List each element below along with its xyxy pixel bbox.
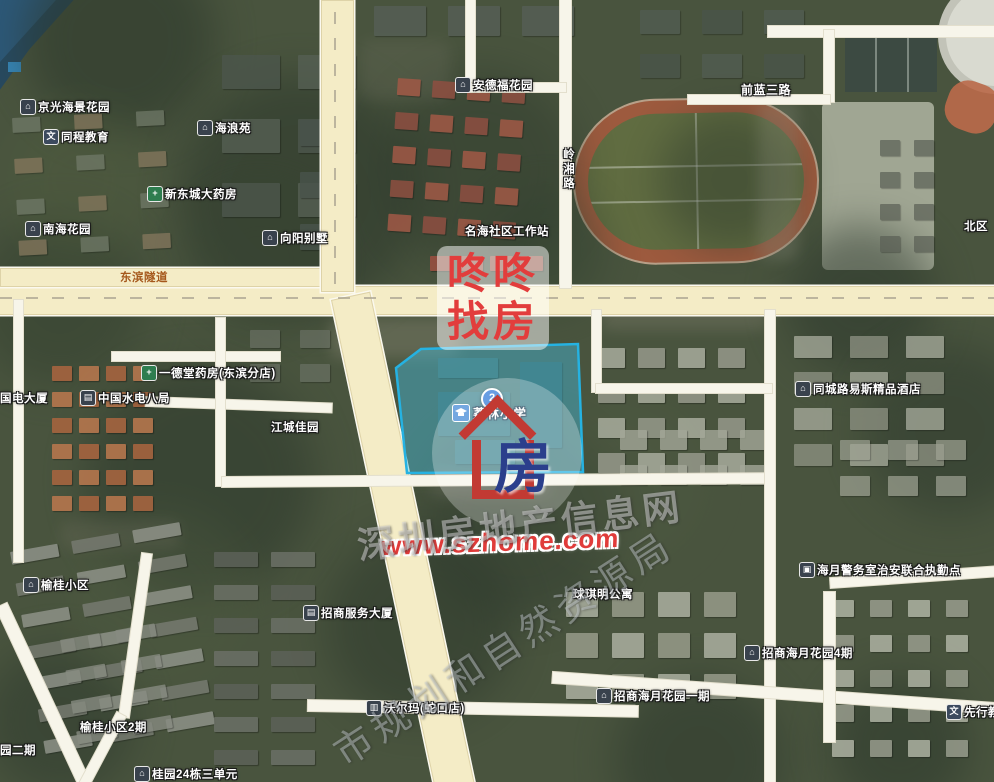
label-text: 先行教育 <box>964 704 994 720</box>
office-icon: ▤ <box>80 390 96 406</box>
label-text: 东滨隧道 <box>120 269 168 285</box>
label-text: 同城路易斯精品酒店 <box>813 381 921 397</box>
school-name: 荔林小学 <box>473 403 527 422</box>
poi-label[interactable]: ⌂海浪苑 <box>197 120 251 136</box>
med-icon: + <box>147 186 163 202</box>
house-icon: ⌂ <box>134 766 150 782</box>
office-icon: ▤ <box>303 605 319 621</box>
poi-label[interactable]: 榆桂小区2期 <box>80 719 147 735</box>
road-label: 岭湘路 <box>560 148 576 192</box>
med-icon: + <box>141 365 157 381</box>
poi-label[interactable]: 名海社区工作站 <box>465 223 549 239</box>
label-text: 国电大厦 <box>0 390 48 406</box>
label-text: 一德堂药房(东滨分店) <box>159 365 276 381</box>
label-text: 招商海月花园一期 <box>614 688 710 704</box>
poi-label[interactable]: ⌂榆桂小区 <box>23 577 89 593</box>
poi-label[interactable]: ▥沃尔玛(蛇口店) <box>366 700 465 716</box>
poi-label[interactable]: 文同程教育 <box>43 129 109 145</box>
police-icon: ▣ <box>799 562 815 578</box>
house-icon: ⌂ <box>455 77 471 93</box>
poi-label[interactable]: +一德堂药房(东滨分店) <box>141 365 276 381</box>
label-text: 园二期 <box>0 742 36 758</box>
house-icon: ⌂ <box>596 688 612 704</box>
label-text: 向阳别墅 <box>280 230 328 246</box>
poi-label[interactable]: 球琪明公寓 <box>573 586 633 602</box>
house-icon: ⌂ <box>197 120 213 136</box>
label-text: 榆桂小区 <box>41 577 89 593</box>
label-text: 同程教育 <box>61 129 109 145</box>
label-text: 安德福花园 <box>473 77 533 93</box>
poi-label[interactable]: 北区 <box>964 218 988 234</box>
label-text: 前蓝三路 <box>741 81 791 98</box>
label-text: 北区 <box>964 218 988 234</box>
label-text: 招商海月花园4期 <box>762 645 853 661</box>
road-label: 前蓝三路 <box>741 81 791 98</box>
label-text: 中国水电八局 <box>98 390 170 406</box>
house-icon: ⌂ <box>20 99 36 115</box>
poi-label[interactable]: 文先行教育 <box>946 704 994 720</box>
label-text: 榆桂小区2期 <box>80 719 147 735</box>
label-text: 桂园24栋三单元 <box>152 766 238 782</box>
poi-label[interactable]: ⌂京光海景花园 <box>20 99 110 115</box>
label-text: 京光海景花园 <box>38 99 110 115</box>
label-text: 球琪明公寓 <box>573 586 633 602</box>
poi-label[interactable]: ⌂向阳别墅 <box>262 230 328 246</box>
label-text: 沃尔玛(蛇口店) <box>384 700 465 716</box>
poi-label[interactable]: ▣海月警务室治安联合执勤点 <box>799 562 961 578</box>
label-text: 新东城大药房 <box>165 186 237 202</box>
poi-label[interactable]: ▤中国水电八局 <box>80 390 170 406</box>
school-poi-label[interactable]: 荔林小学 <box>452 403 527 422</box>
label-text: 海浪苑 <box>215 120 251 136</box>
satellite-map-canvas[interactable]: 2 荔林小学 咚咚 找房 房 www.szhome.com 深圳房地产信息网 市… <box>0 0 994 782</box>
house-icon: ⌂ <box>25 221 41 237</box>
poi-label[interactable]: ▤招商服务大厦 <box>303 605 393 621</box>
poi-label[interactable]: ⌂桂园24栋三单元 <box>134 766 238 782</box>
edu-icon: 文 <box>946 704 962 720</box>
label-text: 招商服务大厦 <box>321 605 393 621</box>
poi-label[interactable]: ⌂同城路易斯精品酒店 <box>795 381 921 397</box>
graduation-cap-icon <box>452 404 470 422</box>
poi-label[interactable]: 园二期 <box>0 742 36 758</box>
poi-label[interactable]: ⌂南海花园 <box>25 221 91 237</box>
poi-label[interactable]: ⌂招商海月花园一期 <box>596 688 710 704</box>
house-icon: ⌂ <box>262 230 278 246</box>
poi-label[interactable]: 江城佳园 <box>271 419 319 435</box>
hotel-icon: ⌂ <box>795 381 811 397</box>
poi-label[interactable]: +新东城大药房 <box>147 186 237 202</box>
label-text: 名海社区工作站 <box>465 223 549 239</box>
shop-icon: ▥ <box>366 700 382 716</box>
label-text: 海月警务室治安联合执勤点 <box>817 562 961 578</box>
house-icon: ⌂ <box>744 645 760 661</box>
poi-label[interactable]: 国电大厦 <box>0 390 48 406</box>
label-text: 江城佳园 <box>271 419 319 435</box>
label-text: 岭湘路 <box>560 148 576 192</box>
label-text: 南海花园 <box>43 221 91 237</box>
road-label: 东滨隧道 <box>120 269 168 285</box>
poi-label[interactable]: ⌂安德福花园 <box>455 77 533 93</box>
poi-label[interactable]: ⌂招商海月花园4期 <box>744 645 853 661</box>
edu-icon: 文 <box>43 129 59 145</box>
house-icon: ⌂ <box>23 577 39 593</box>
